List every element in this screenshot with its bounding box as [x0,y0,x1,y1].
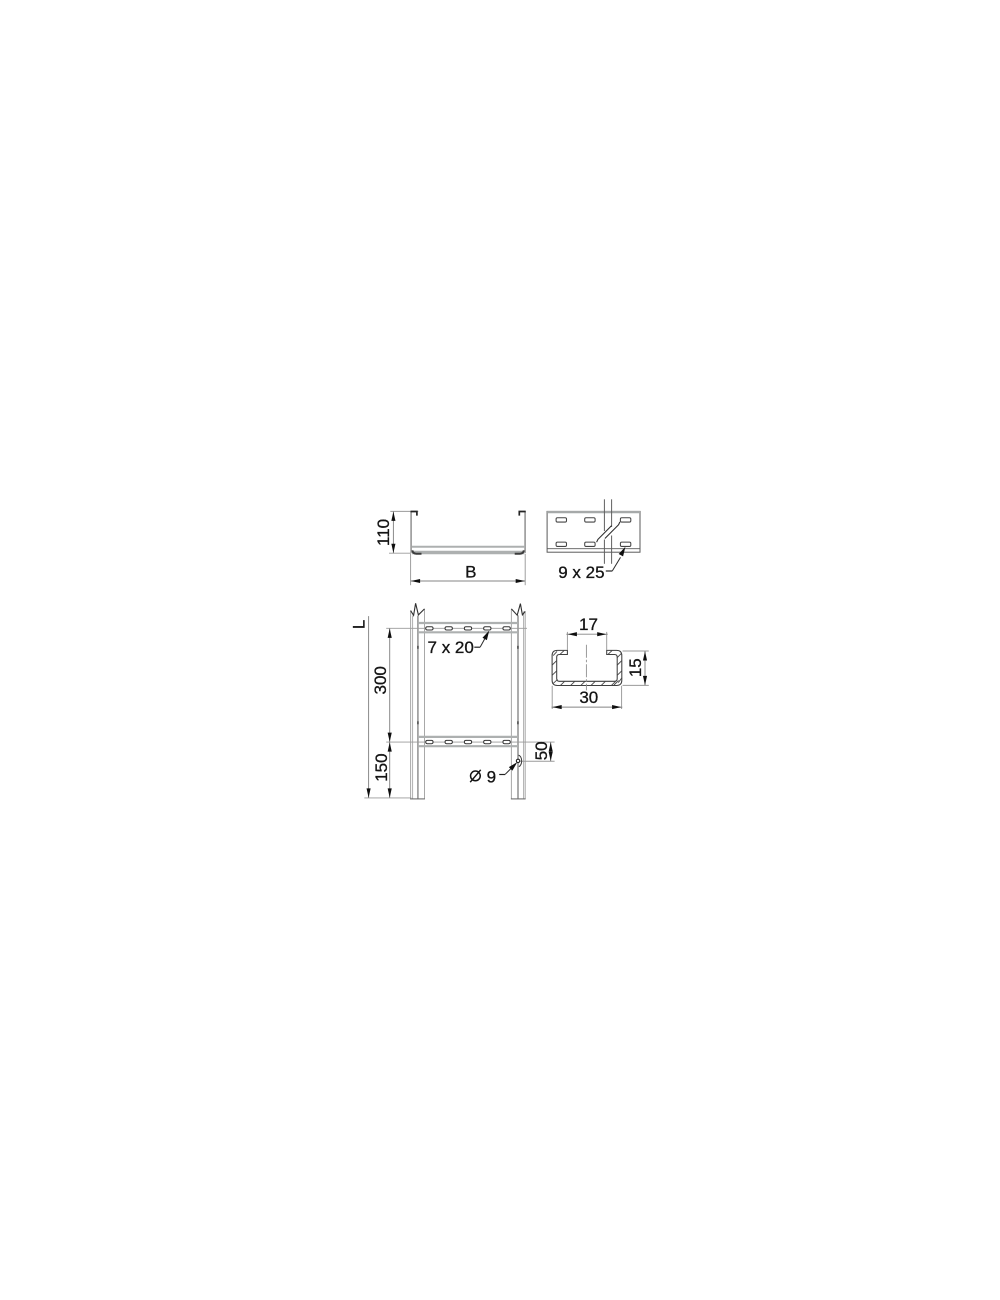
svg-text:B: B [465,563,476,582]
svg-text:30: 30 [579,688,598,707]
svg-text:L: L [349,620,368,629]
svg-text:7 x 20: 7 x 20 [428,638,474,657]
svg-text:150: 150 [372,753,391,781]
svg-text:9: 9 [487,768,496,787]
svg-text:300: 300 [371,666,390,694]
svg-text:17: 17 [579,615,598,634]
svg-text:50: 50 [532,741,551,760]
svg-text:110: 110 [374,519,393,546]
svg-text:9 x 25: 9 x 25 [558,563,604,582]
svg-text:15: 15 [626,658,645,677]
